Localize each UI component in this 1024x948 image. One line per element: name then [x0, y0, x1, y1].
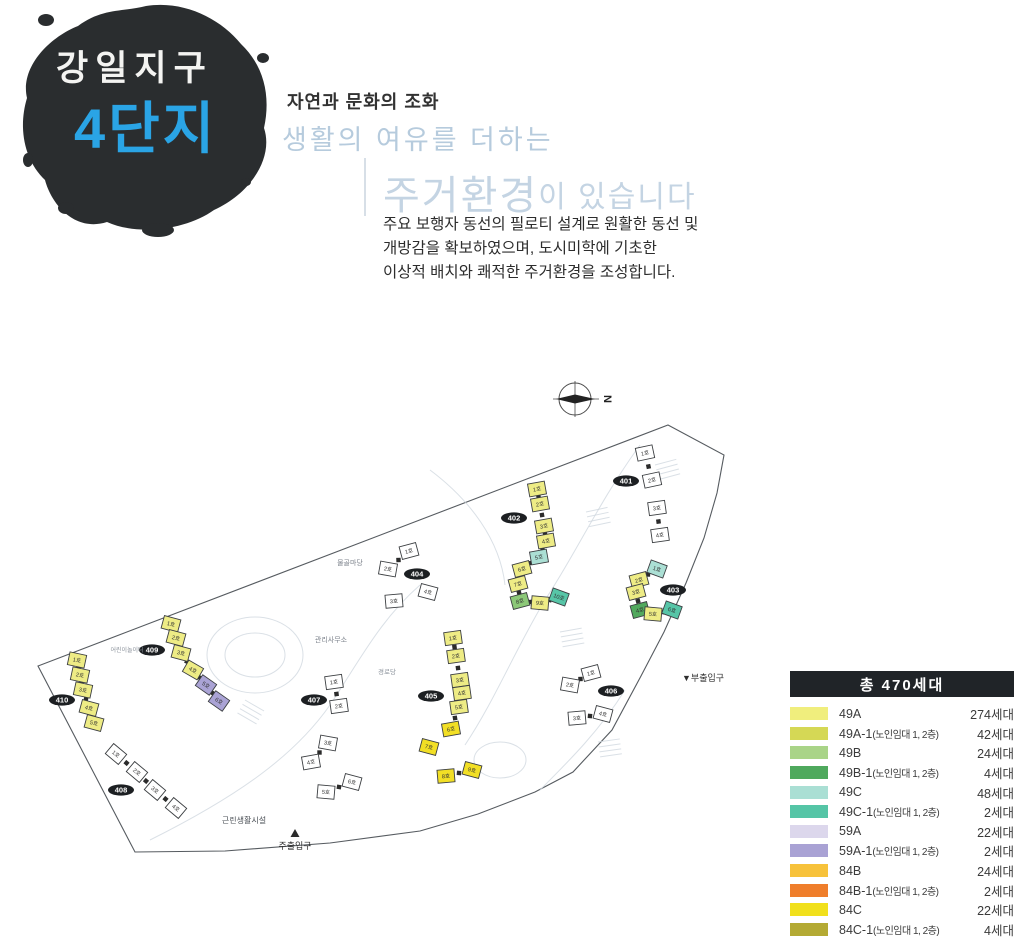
legend-rows: 49A274세대49A-1(노인임대 1, 2층)42세대49B24세대49B-… [790, 704, 1014, 939]
site-boundary-layer [38, 425, 724, 852]
building-unit: 3호 [385, 594, 403, 608]
legend-count: 22세대 [962, 822, 1014, 841]
legend-row: 49B-1(노인임대 1, 2층)4세대 [790, 763, 1014, 783]
building-number: 405 [425, 691, 438, 700]
building-unit: 2호 [447, 648, 466, 663]
building-unit: 3호 [568, 711, 586, 725]
building-unit-label: 5호 [322, 789, 331, 797]
building-number: 408 [115, 785, 128, 794]
building-number: 410 [56, 695, 69, 704]
legend-count: 4세대 [962, 763, 1014, 782]
building-unit-label: 4호 [457, 689, 466, 697]
map-label: 관리사무소 [315, 635, 348, 644]
building-number: 401 [620, 476, 633, 485]
legend-row: 49A274세대 [790, 704, 1014, 724]
building-unit-label: 6호 [446, 725, 455, 733]
map-label: 근린생활시설 [222, 815, 266, 825]
legend-swatch [790, 844, 828, 857]
map-label: 경로당 [378, 667, 396, 676]
building-unit: 2호 [379, 561, 398, 577]
brochure-page: 강일지구 4단지 자연과 문화의 조화 생활의 여유를 더하는 주거환경 이 있… [0, 0, 1024, 948]
building-core [646, 464, 651, 469]
building-unit: 5호 [450, 699, 469, 714]
legend-row: 84B24세대 [790, 861, 1014, 881]
building-unit: 6호 [442, 721, 461, 737]
legend-note: (노인임대 1, 2층) [873, 808, 939, 819]
building-unit: 5호 [644, 607, 662, 621]
building-unit: 2호 [561, 677, 580, 693]
building-unit: 1호 [528, 481, 547, 497]
building-unit: 4호 [453, 685, 472, 700]
legend-row: 49C48세대 [790, 782, 1014, 802]
building-unit: 5호 [317, 785, 335, 799]
building-core [656, 519, 661, 524]
legend-type-label: 49C [828, 785, 962, 799]
legend-row: 49C-1(노인임대 1, 2층)2세대 [790, 802, 1014, 822]
compass-layer: N [553, 381, 613, 417]
sub-entrance-label: ▼부출입구 [682, 672, 724, 683]
building-number: 409 [146, 645, 159, 654]
legend-count: 24세대 [962, 861, 1014, 880]
legend-row: 49A-1(노인임대 1, 2층)42세대 [790, 724, 1014, 744]
building-unit: 4호 [651, 527, 670, 542]
building-unit-label: 5호 [649, 611, 658, 619]
legend-type-label: 49C-1(노인임대 1, 2층) [828, 804, 962, 819]
building-core [336, 784, 341, 789]
building-unit-label: 2호 [535, 500, 544, 508]
building-unit-label: 1호 [532, 485, 541, 493]
legend-count: 274세대 [962, 704, 1014, 723]
building-unit: 2호 [330, 698, 349, 713]
building-unit-label: 2호 [383, 565, 392, 573]
legend-swatch [790, 707, 828, 720]
building-unit-label: 5호 [534, 553, 543, 561]
map-label: 물골마당 [337, 558, 363, 567]
building-unit: 4호 [537, 533, 556, 549]
legend-count: 2세대 [962, 881, 1014, 900]
legend-count: 4세대 [962, 920, 1014, 939]
building-core [588, 714, 593, 719]
building-unit-label: 2호 [451, 652, 460, 660]
legend-header: 총 470세대 [790, 671, 1014, 697]
legend-swatch [790, 786, 828, 799]
compass-needle [556, 395, 595, 404]
map-label: 어린이놀이터 [110, 646, 143, 654]
legend-swatch [790, 903, 828, 916]
legend-row: 59A22세대 [790, 822, 1014, 842]
building-core [539, 512, 544, 517]
building-unit-label: 1호 [329, 678, 338, 686]
legend-count: 2세대 [962, 841, 1014, 860]
legend-swatch [790, 746, 828, 759]
building-unit-label: 8호 [442, 773, 451, 781]
unit-legend: 총 470세대 49A274세대49A-1(노인임대 1, 2층)42세대49B… [790, 671, 1014, 939]
building-number: 407 [308, 695, 321, 704]
legend-count: 48세대 [962, 783, 1014, 802]
building-unit-label: 3호 [455, 676, 464, 684]
legend-swatch [790, 727, 828, 740]
building-unit-label: 5호 [454, 703, 463, 711]
legend-swatch [790, 923, 828, 936]
legend-note: (노인임대 1, 2층) [872, 730, 938, 741]
building-unit-label: 3호 [573, 715, 582, 723]
legend-count: 42세대 [962, 724, 1014, 743]
building-core [334, 692, 339, 697]
legend-type-label: 84B-1(노인임대 1, 2층) [828, 883, 962, 898]
legend-count: 24세대 [962, 743, 1014, 762]
building-unit-label: 2호 [334, 702, 343, 710]
building-unit: 9호 [531, 596, 549, 610]
building-unit: 4호 [302, 754, 321, 770]
building-unit-label: 3호 [390, 598, 399, 606]
legend-count: 2세대 [962, 802, 1014, 821]
legend-type-label: 49B [828, 746, 962, 760]
legend-type-label: 59A [828, 824, 962, 838]
building-core [396, 558, 401, 563]
building-core [457, 771, 462, 776]
legend-type-label: 84C-1(노인임대 1, 2층) [828, 922, 962, 937]
building-unit: 3호 [535, 518, 554, 534]
building-unit: 5호 [530, 549, 549, 565]
building-unit-label: 2호 [565, 681, 574, 689]
building-number: 403 [667, 585, 680, 594]
building-unit: 3호 [648, 500, 667, 515]
building-core [452, 715, 457, 720]
building-number: 402 [508, 513, 521, 522]
building-core [452, 645, 457, 650]
legend-row: 49B24세대 [790, 743, 1014, 763]
building-number: 406 [605, 686, 618, 695]
legend-swatch [790, 825, 828, 838]
legend-type-label: 84B [828, 864, 962, 878]
compass-north-label: N [601, 395, 613, 403]
legend-row: 84B-1(노인임대 1, 2층)2세대 [790, 880, 1014, 900]
legend-row: 84C22세대 [790, 900, 1014, 920]
building-core [456, 666, 461, 671]
legend-note: (노인임대 1, 2층) [872, 847, 938, 858]
legend-note: (노인임대 1, 2층) [872, 769, 938, 780]
building-unit-label: 4호 [655, 531, 664, 539]
legend-swatch [790, 805, 828, 818]
legend-type-label: 49A-1(노인임대 1, 2층) [828, 726, 962, 741]
legend-note: (노인임대 1, 2층) [872, 887, 938, 898]
legend-type-label: 49B-1(노인임대 1, 2층) [828, 765, 962, 780]
building-unit-label: 4호 [541, 537, 550, 545]
building-unit: 2호 [531, 496, 550, 512]
building-unit-label: 3호 [323, 739, 332, 747]
legend-type-label: 59A-1(노인임대 1, 2층) [828, 843, 962, 858]
legend-swatch [790, 864, 828, 877]
building-unit-label: 3호 [539, 522, 548, 530]
legend-swatch [790, 884, 828, 897]
building-unit: 1호 [325, 674, 344, 689]
building-unit: 3호 [319, 735, 338, 751]
building-unit-label: 1호 [448, 634, 457, 642]
building-unit-label: 3호 [652, 504, 661, 512]
legend-row: 59A-1(노인임대 1, 2층)2세대 [790, 841, 1014, 861]
legend-type-label: 49A [828, 707, 962, 721]
building-unit-label: 4호 [306, 758, 315, 766]
legend-type-label: 84C [828, 903, 962, 917]
main-entrance-label: 주출입구 [278, 840, 311, 851]
building-unit-label: 9호 [536, 600, 545, 608]
legend-row: 84C-1(노인임대 1, 2층)4세대 [790, 920, 1014, 940]
legend-count: 22세대 [962, 900, 1014, 919]
legend-note: (노인임대 1, 2층) [873, 926, 939, 937]
building-number: 404 [411, 569, 424, 578]
building-unit: 1호 [444, 630, 463, 645]
legend-swatch [790, 766, 828, 779]
site-boundary [38, 425, 724, 852]
building-unit: 8호 [437, 769, 455, 783]
building-unit: 3호 [451, 672, 470, 687]
